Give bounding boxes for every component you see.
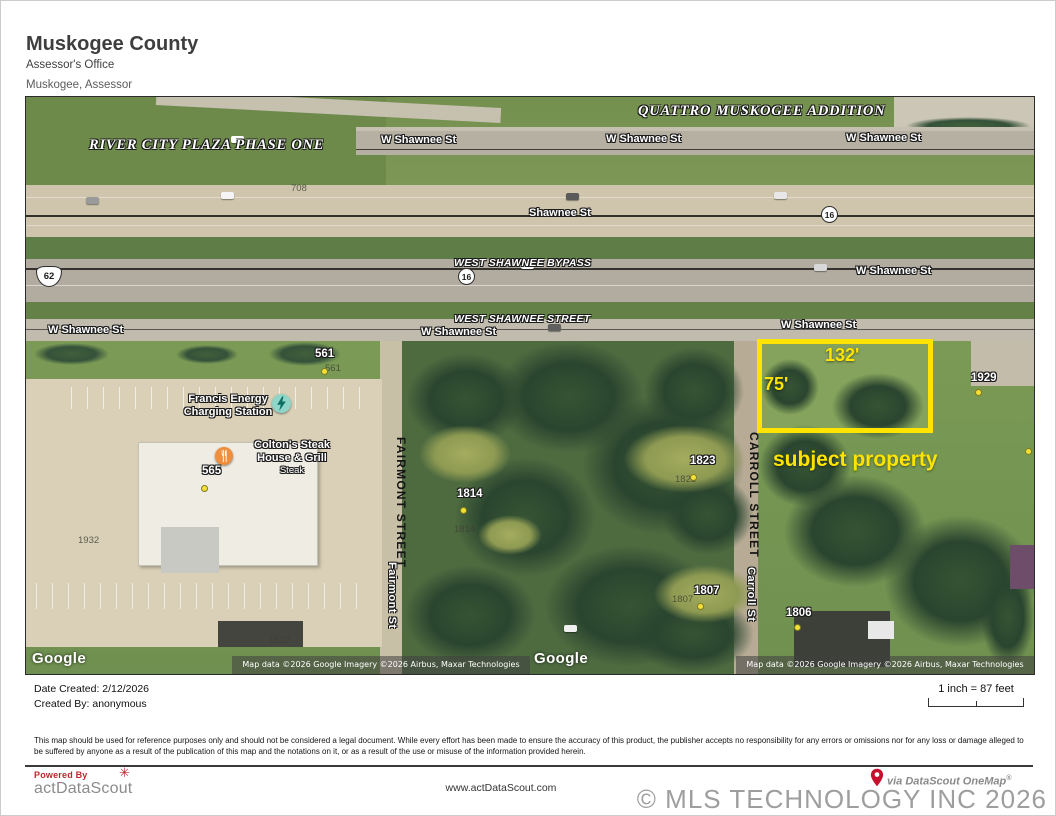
parcel-marker-dot — [690, 474, 697, 481]
street-label-w-shawnee: W Shawnee St — [381, 134, 456, 146]
parcel-number-faded: 1812 — [269, 635, 290, 646]
parcel-number: 1814 — [457, 488, 483, 500]
car — [564, 625, 577, 632]
street-label-w-shawnee: W Shawnee St — [421, 326, 496, 338]
footer-divider — [25, 765, 1033, 767]
car — [774, 192, 787, 199]
street-label-w-shawnee: W Shawnee St — [781, 319, 856, 331]
scale-tick — [1023, 698, 1024, 706]
department-subtitle: Muskogee, Assessor — [26, 79, 132, 91]
hedge — [34, 343, 109, 365]
subject-depth-label: 75' — [764, 374, 788, 395]
scale-tick — [976, 701, 977, 706]
street-label-w-shawnee: W Shawnee St — [48, 324, 123, 336]
google-logo: Google — [534, 650, 588, 667]
lane-line — [26, 285, 1034, 286]
house-detail — [868, 621, 894, 639]
car — [566, 193, 579, 200]
restaurant-icon — [215, 447, 233, 465]
car — [221, 192, 234, 199]
parcel-marker-dot — [1025, 448, 1032, 455]
parcel-line — [356, 149, 1034, 150]
parcel-marker-dot — [201, 485, 208, 492]
poi-line: House & Grill — [232, 452, 352, 465]
map-attribution: Map data ©2026 Google Imagery ©2026 Airb… — [736, 656, 1034, 674]
parcel-marker-dot — [975, 389, 982, 396]
hedge — [176, 345, 238, 364]
assessor-map-page: Muskogee County Assessor's Office Muskog… — [0, 0, 1056, 816]
aerial-map: RIVER CITY PLAZA PHASE ONE QUATTRO MUSKO… — [25, 96, 1035, 675]
actdatascout-logo: actDataScout — [34, 780, 132, 798]
map-attribution: Map data ©2026 Google Imagery ©2026 Airb… — [232, 656, 530, 674]
parcel-number: 1806 — [786, 607, 812, 619]
poi-line: Steak — [232, 465, 352, 476]
scale-label: 1 inch = 87 feet — [928, 683, 1024, 695]
street-label-w-shawnee: W Shawnee St — [846, 132, 921, 144]
tree — [644, 347, 744, 435]
equipment — [218, 621, 303, 647]
powered-by-label: Powered By — [34, 770, 88, 780]
grass-patch — [419, 425, 511, 483]
parcel-number: 565 — [202, 465, 221, 477]
date-created: Date Created: 2/12/2026 — [34, 683, 149, 695]
ok-16-shield: 16 — [821, 206, 838, 223]
poi-line: Charging Station — [168, 406, 288, 419]
disclaimer-text: This map should be used for reference pu… — [34, 736, 1034, 758]
brand-flower-icon: ✳ — [119, 765, 130, 781]
created-by: Created By: anonymous — [34, 698, 147, 710]
street-label-carroll-street: CARROLL STREET — [747, 432, 761, 558]
street-label-w-shawnee: W Shawnee St — [606, 133, 681, 145]
building-annex — [161, 527, 219, 573]
street-label-fairmont-st: Fairmont St — [386, 562, 398, 629]
tree — [404, 565, 536, 665]
parking-stripes — [36, 583, 366, 609]
parcel-line — [26, 329, 1034, 330]
parcel-marker-dot — [794, 624, 801, 631]
subject-property-caption: subject property — [773, 448, 938, 472]
street-label-fairmont-street: FAIRMONT STREET — [394, 437, 408, 568]
scale-bar — [928, 698, 1024, 707]
subject-frontage-label: 132' — [825, 345, 859, 366]
parcel-number-faded: 1814 — [454, 524, 475, 535]
poi-coltons: Colton's Steak House & Grill Steak — [232, 439, 352, 476]
car — [814, 264, 827, 271]
car — [548, 324, 561, 331]
shed-roof — [1010, 545, 1035, 589]
street-label-bypass: WEST SHAWNEE BYPASS — [454, 257, 591, 269]
ev-charging-icon — [272, 394, 291, 413]
parcel-marker-dot — [697, 603, 704, 610]
parcel-number: 1807 — [694, 585, 720, 597]
scale-tick — [928, 698, 929, 706]
grass-patch — [478, 515, 542, 555]
parcel-number: 708 — [291, 183, 307, 194]
parcel-number-faded: 1932 — [78, 535, 99, 546]
car — [86, 197, 99, 204]
website-url: www.actDataScout.com — [381, 782, 621, 794]
page-title: Muskogee County — [26, 33, 198, 56]
parcel-number: 1823 — [690, 455, 716, 467]
poi-line: Francis Energy — [168, 393, 288, 406]
mls-copyright: © MLS TECHNOLOGY INC 2026 — [637, 784, 1047, 815]
lane-line — [26, 197, 1034, 198]
subdivision-label-river-city: RIVER CITY PLAZA PHASE ONE — [89, 137, 324, 154]
parcel-number: 1929 — [971, 372, 997, 384]
parcel-number-faded: 1806 — [802, 621, 823, 632]
street-label-carroll-st: Carroll St — [745, 567, 757, 622]
subdivision-label-quattro: QUATTRO MUSKOGEE ADDITION — [638, 103, 885, 120]
lane-line — [26, 225, 1034, 226]
parcel-marker-dot — [460, 507, 467, 514]
registered-mark: ® — [1006, 775, 1011, 782]
parcel-number-faded: 1807 — [672, 594, 693, 605]
ok-16-shield: 16 — [458, 268, 475, 285]
google-logo: Google — [32, 650, 86, 667]
parcel-number: 561 — [315, 348, 334, 360]
street-label-shawnee: Shawnee St — [529, 207, 591, 219]
parcel-marker-dot — [321, 368, 328, 375]
poi-francis-energy: Francis Energy Charging Station — [168, 393, 288, 419]
office-subtitle: Assessor's Office — [26, 59, 114, 71]
poi-line: Colton's Steak — [232, 439, 352, 452]
top-road — [356, 131, 1034, 155]
street-label-west-shawnee-street: WEST SHAWNEE STREET — [454, 313, 590, 325]
street-label-w-shawnee: W Shawnee St — [856, 265, 931, 277]
median-strip — [26, 237, 1034, 259]
